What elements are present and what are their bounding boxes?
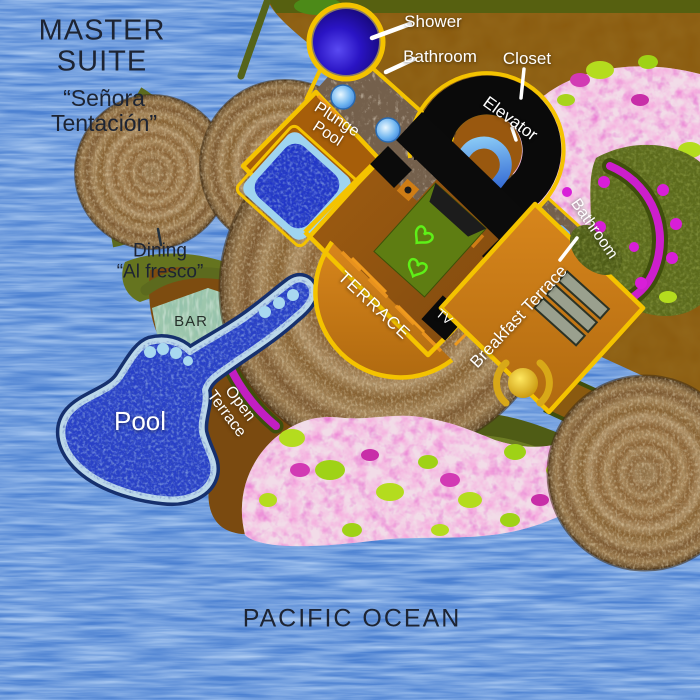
map-graphics xyxy=(0,0,700,700)
resort-map: MASTER SUITE “Señora Tentación” Shower B… xyxy=(0,0,700,700)
sink-basin xyxy=(376,118,400,142)
shower-stall xyxy=(309,5,383,79)
breakfast-table xyxy=(508,368,538,398)
sink-basin xyxy=(331,85,355,109)
